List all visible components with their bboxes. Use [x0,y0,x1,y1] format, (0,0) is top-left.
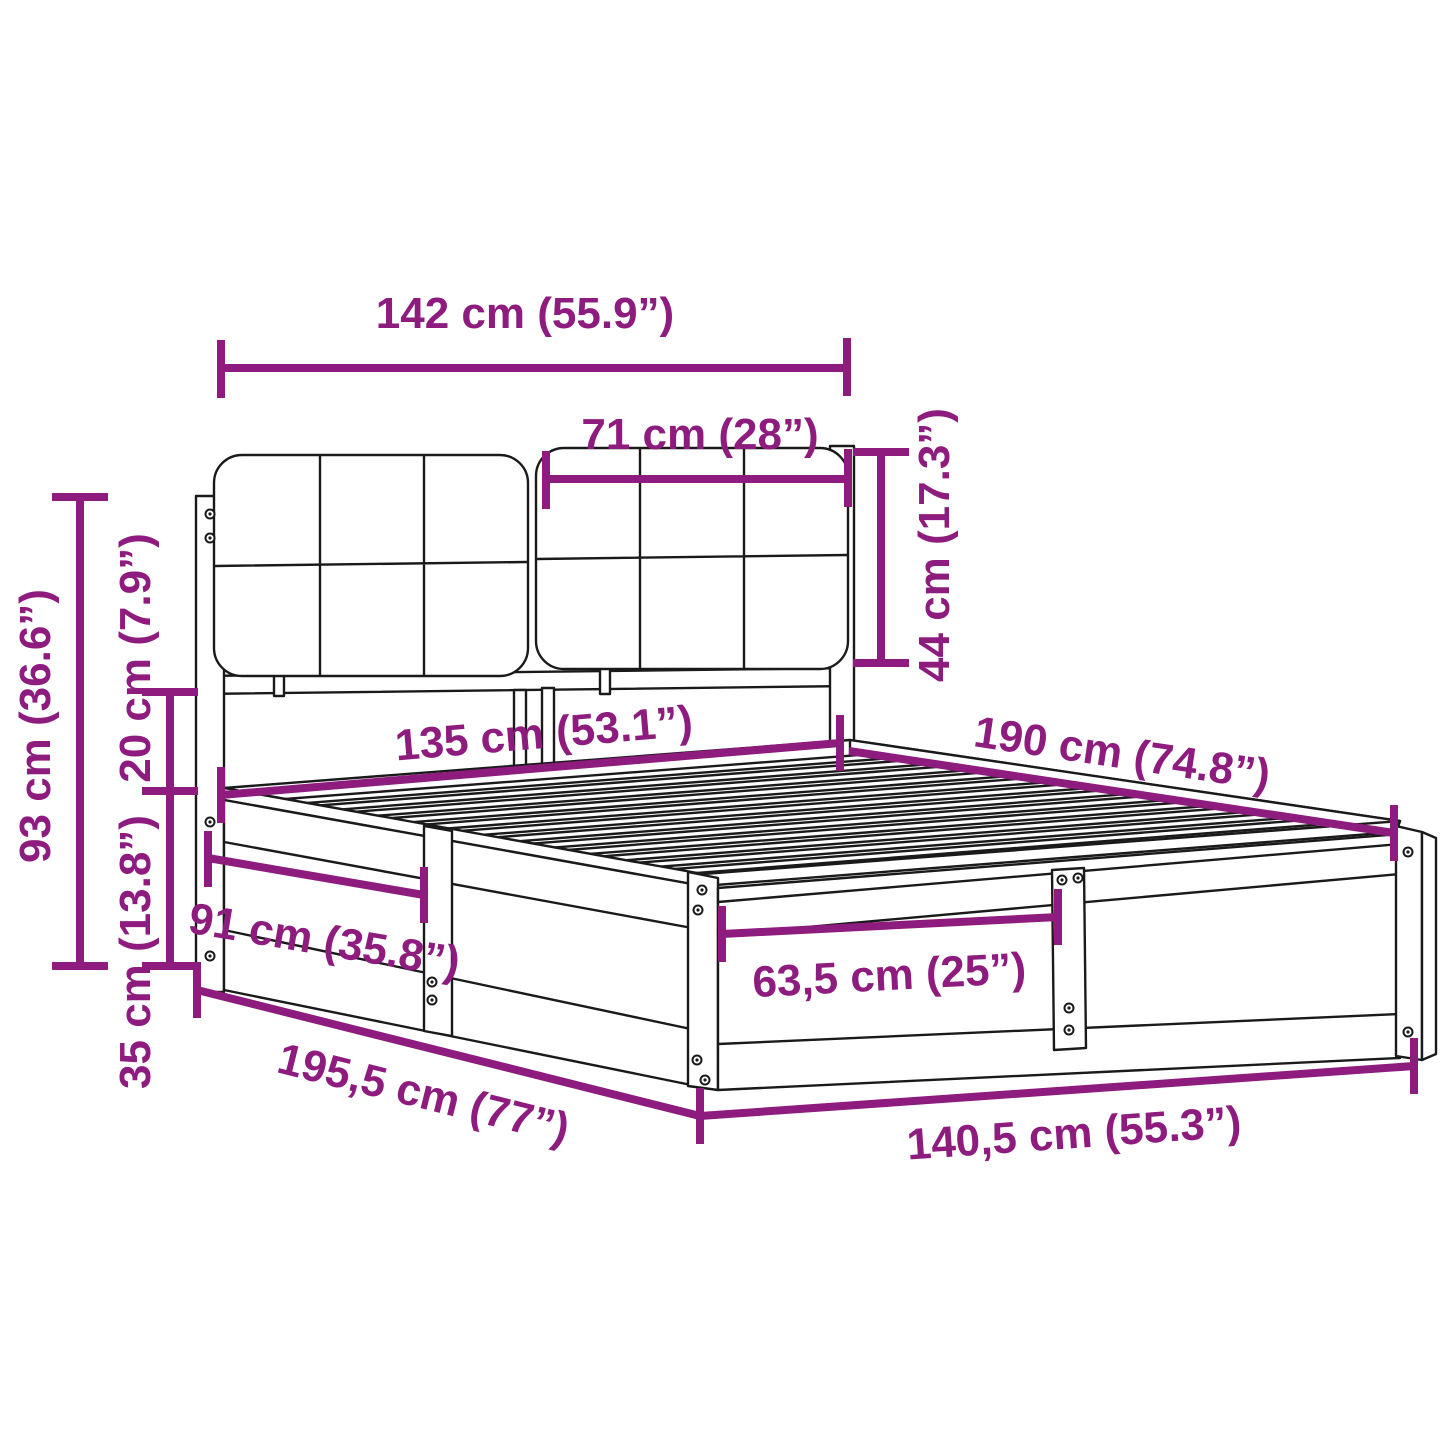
dim-label-cushion-height: 44 cm (17.3”) [910,408,959,682]
bed-dimension-diagram-page: 142 cm (55.9”) 71 cm (28”) 44 cm (17.3”)… [0,0,1445,1445]
bed-dimension-diagram: 142 cm (55.9”) 71 cm (28”) 44 cm (17.3”)… [0,0,1445,1445]
dim-label-headboard-height: 93 cm (36.6”) [11,589,60,863]
dim-label-frame-height: 35 cm (13.8”) [111,815,160,1089]
dim-label-total-width-top: 142 cm (55.9”) [376,289,674,338]
dim-label-total-width-bottom: 140,5 cm (55.3”) [905,1097,1243,1169]
dim-label-cushion-width: 71 cm (28”) [581,410,818,459]
dim-label-clearance-height: 20 cm (7.9”) [111,533,160,782]
